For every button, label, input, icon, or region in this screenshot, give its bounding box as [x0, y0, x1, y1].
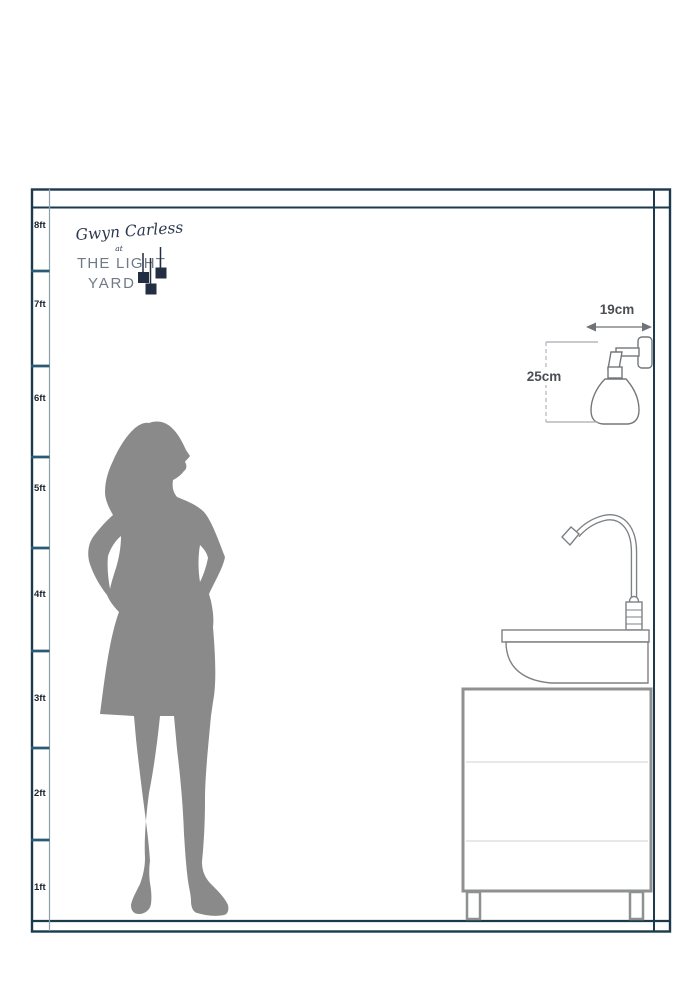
ruler-label-3ft: 3ft	[34, 693, 46, 704]
height-ruler: 8ft 7ft 6ft 5ft 4ft 3ft 2ft 1ft	[31, 220, 50, 893]
wall-plate	[638, 337, 652, 368]
wall-light	[591, 337, 652, 424]
ruler-ticks	[31, 271, 50, 840]
width-dimension: 19cm	[586, 302, 652, 332]
brand-line1: THE LIGHT	[77, 255, 166, 272]
scale-diagram-page: 8ft 7ft 6ft 5ft 4ft 3ft 2ft 1ft Gwyn Car…	[0, 0, 700, 1000]
cabinet-leg	[467, 892, 480, 919]
brand-at: at	[115, 244, 123, 253]
sink-vanity-unit	[463, 517, 651, 919]
faucet-tube-outline	[577, 517, 634, 602]
faucet-spout-tip	[562, 527, 579, 545]
height-dimension: 25cm	[522, 342, 598, 422]
vanity-cabinet	[463, 689, 651, 891]
sink-basin	[506, 642, 648, 683]
arrow-head-left-icon	[586, 323, 596, 332]
ruler-label-5ft: 5ft	[34, 483, 46, 494]
faucet	[562, 517, 642, 630]
ruler-label-1ft: 1ft	[34, 882, 46, 893]
height-dimension-label: 25cm	[527, 369, 562, 384]
faucet-base	[626, 602, 642, 630]
ruler-label-4ft: 4ft	[34, 589, 46, 600]
ruler-label-6ft: 6ft	[34, 393, 46, 404]
shade-neck	[608, 367, 622, 378]
woman-silhouette	[88, 421, 228, 915]
bell-shade	[591, 379, 639, 424]
arrow-head-right-icon	[642, 323, 652, 332]
brand-script-name: Gwyn Carless	[75, 219, 184, 244]
brand-line2: YARD	[88, 275, 136, 292]
ruler-label-7ft: 7ft	[34, 299, 46, 310]
ruler-label-2ft: 2ft	[34, 788, 46, 799]
width-dimension-label: 19cm	[600, 302, 635, 317]
brand-logo: Gwyn Carless at THE LIGHT YARD	[75, 219, 184, 295]
diagram-art: 8ft 7ft 6ft 5ft 4ft 3ft 2ft 1ft Gwyn Car…	[0, 0, 700, 1000]
cabinet-leg	[630, 892, 643, 919]
ruler-label-8ft: 8ft	[34, 220, 46, 231]
counter-top	[502, 630, 649, 642]
